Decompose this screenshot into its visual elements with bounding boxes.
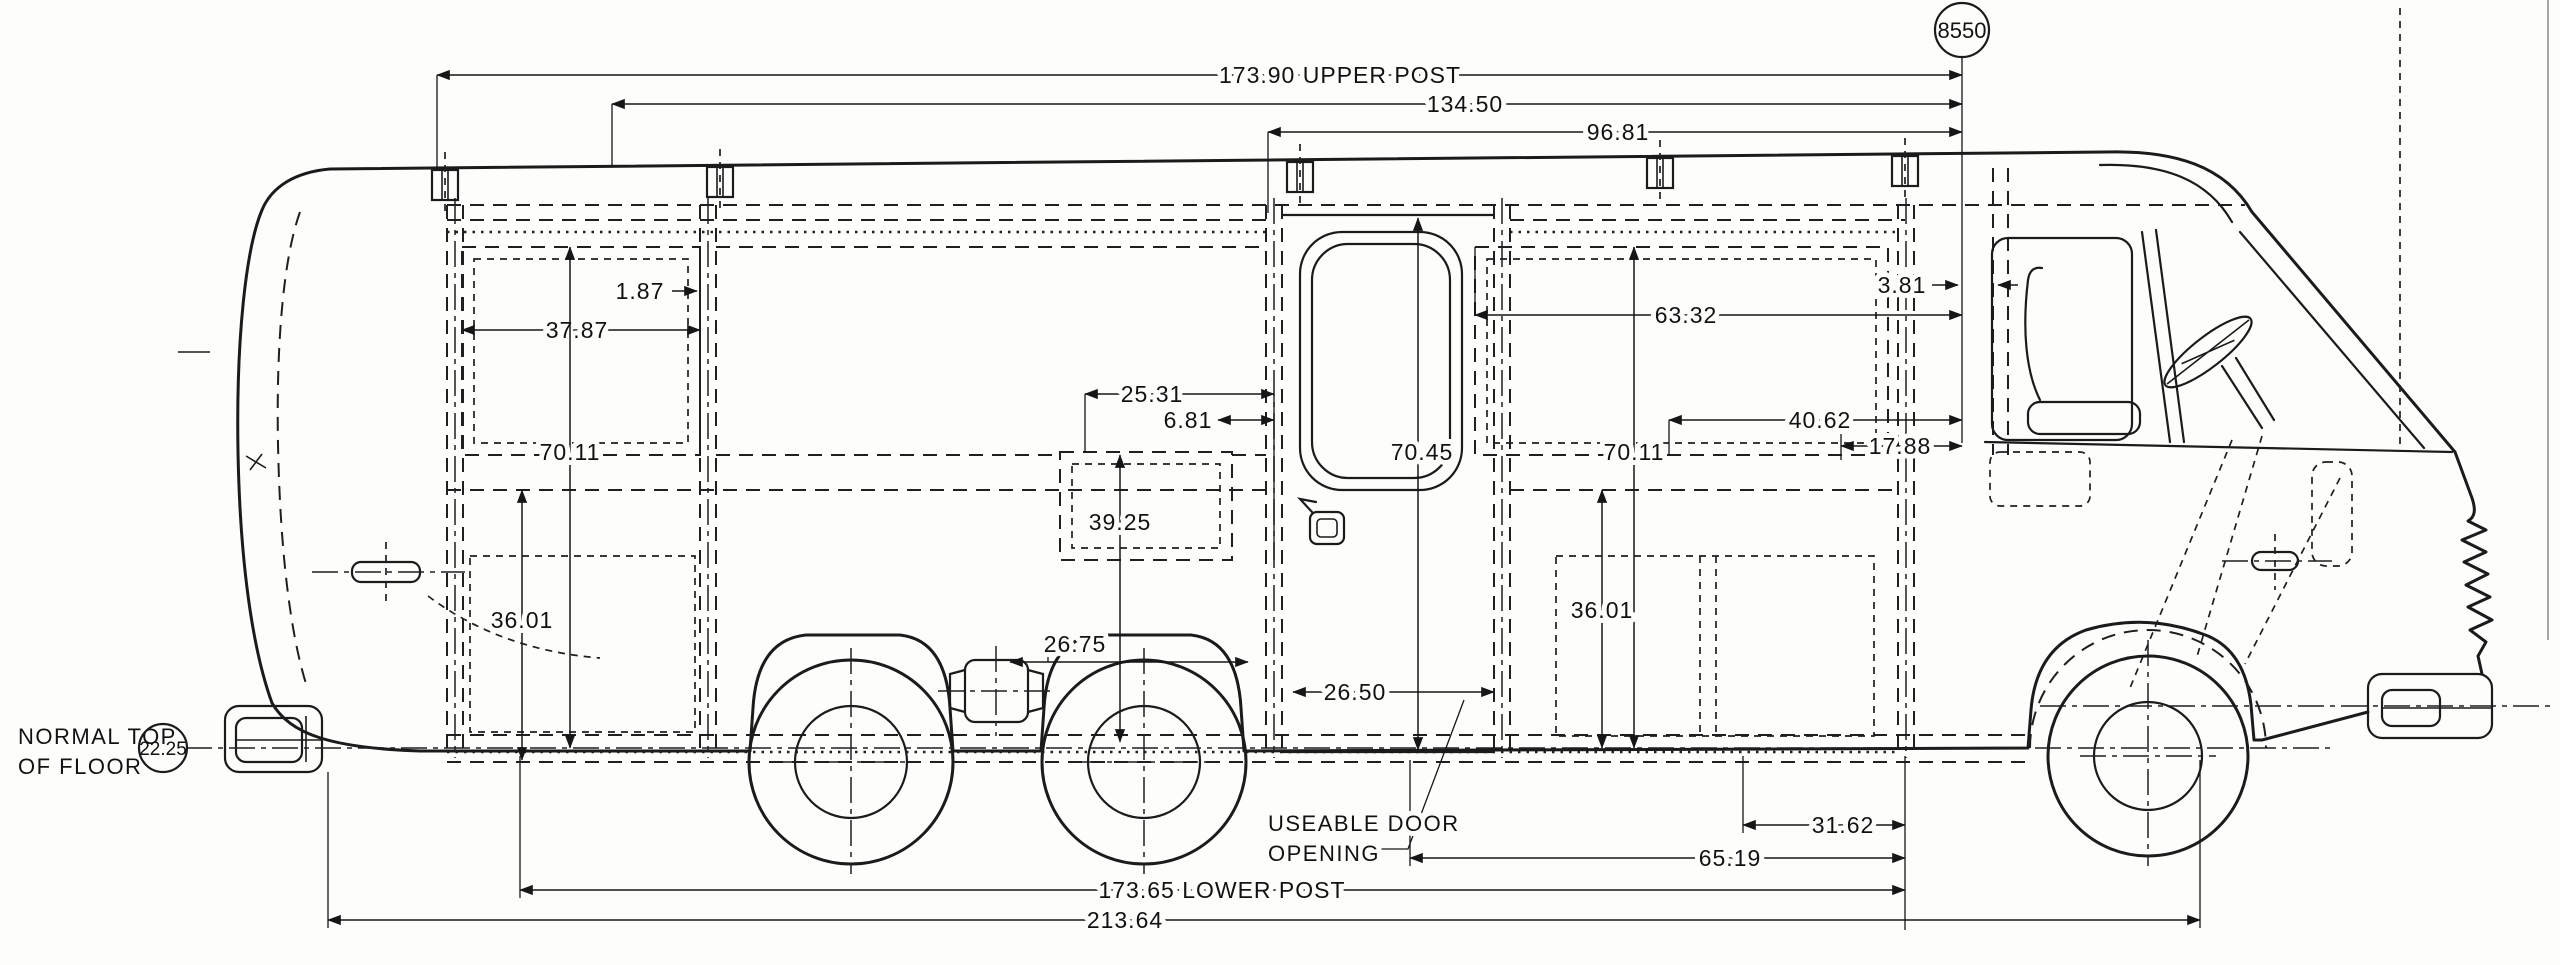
blueprint-sheet: 8550 173.90 UPPER POST 134.50 96.81 37.8… [0, 0, 2560, 965]
post-door-right [1494, 198, 1510, 758]
door-note-line2: OPENING [1268, 841, 1380, 866]
svg-text:1.87: 1.87 [616, 278, 665, 304]
roof-bracket [707, 149, 733, 211]
dim-37-87: 37.87 [462, 317, 700, 343]
dim-lower-post: 173.65 LOWER POST [520, 756, 1905, 903]
svg-text:26.50: 26.50 [1324, 679, 1387, 705]
svg-text:173.90 UPPER POST: 173.90 UPPER POST [1219, 62, 1461, 88]
svg-text:26.75: 26.75 [1044, 631, 1107, 657]
svg-text:40.62: 40.62 [1789, 407, 1852, 433]
dim-36-01-right: 36.01 [1571, 490, 1634, 748]
driver-window [1992, 238, 2132, 440]
svg-text:63.32: 63.32 [1655, 302, 1718, 328]
svg-text:213.64: 213.64 [1087, 907, 1163, 933]
roof-bracket [1647, 140, 1673, 202]
upper-balloon-label: 8550 [1938, 18, 1987, 43]
svg-text:36.01: 36.01 [1571, 597, 1634, 623]
rear-marker-lamp [312, 542, 465, 602]
roof-brackets [432, 138, 1918, 214]
front-bumper [2040, 674, 2552, 738]
svg-text:31.62: 31.62 [1812, 812, 1875, 838]
plus-mark [246, 454, 266, 470]
seat-base-dashed [1990, 452, 2090, 506]
dim-96-81: 96.81 [1268, 119, 1962, 213]
tandem-axle-unit [938, 646, 1055, 736]
svg-text:3.81: 3.81 [1878, 272, 1927, 298]
rear-bumper [225, 706, 322, 772]
svg-text:65.19: 65.19 [1699, 845, 1762, 871]
svg-text:70.45: 70.45 [1391, 439, 1454, 465]
front-marker-lamp [2222, 534, 2332, 590]
post-windshield [1993, 168, 2008, 455]
door-handle [1300, 499, 1344, 544]
svg-text:96.81: 96.81 [1587, 119, 1650, 145]
motorhome-dimension-drawing: 8550 173.90 UPPER POST 134.50 96.81 37.8… [0, 0, 2560, 965]
floor-balloon-label: 22.25 [139, 739, 187, 760]
dim-39-25: 39.25 [1089, 455, 1152, 742]
frame-structure [186, 8, 2400, 762]
svg-text:134.50: 134.50 [1427, 91, 1503, 117]
upper-balloon: 8550 [1935, 3, 1989, 443]
svg-text:36.01: 36.01 [491, 607, 554, 633]
dim-36-01-left: 36.01 [491, 490, 554, 760]
post-2 [700, 198, 716, 758]
driver-seat [2025, 268, 2140, 434]
dim-6-81: 6.81 [1164, 407, 1274, 433]
svg-text:70.11: 70.11 [1604, 439, 1665, 465]
dim-70-45: 70.45 [1391, 218, 1454, 750]
b-pillar [2142, 232, 2170, 442]
galley-window-opening [1060, 452, 1232, 560]
floor-note-line2: OF FLOOR [18, 754, 142, 779]
dim-1-87: 1.87 [616, 278, 697, 304]
roof-bracket [1892, 138, 1918, 200]
svg-text:39.25: 39.25 [1089, 509, 1152, 535]
svg-text:173.65 LOWER POST: 173.65 LOWER POST [1098, 877, 1345, 903]
post-rear [447, 198, 463, 758]
dim-3-81: 3.81 [1878, 272, 2018, 298]
entry-door [1282, 215, 1494, 752]
svg-text:17.88: 17.88 [1869, 433, 1932, 459]
dimensions: 8550 173.90 UPPER POST 134.50 96.81 37.8… [328, 3, 2200, 933]
door-note-line1: USEABLE DOOR [1268, 811, 1460, 836]
svg-text:6.81: 6.81 [1164, 407, 1213, 433]
dim-31-62: 31.62 [1743, 756, 1905, 930]
svg-text:70.11: 70.11 [540, 439, 601, 465]
svg-text:25.31: 25.31 [1121, 381, 1184, 407]
roof-bracket [1287, 144, 1313, 206]
dim-upper-post: 173.90 UPPER POST [437, 62, 1962, 167]
svg-text:37.87: 37.87 [546, 317, 609, 343]
door-note: USEABLE DOOR OPENING [1268, 700, 1464, 866]
steering-column [2222, 366, 2262, 428]
floor-note: NORMAL TOP OF FLOOR 22.25 [18, 724, 187, 779]
dim-overall: 213.64 [328, 760, 2200, 933]
console-dashed [2312, 462, 2352, 566]
